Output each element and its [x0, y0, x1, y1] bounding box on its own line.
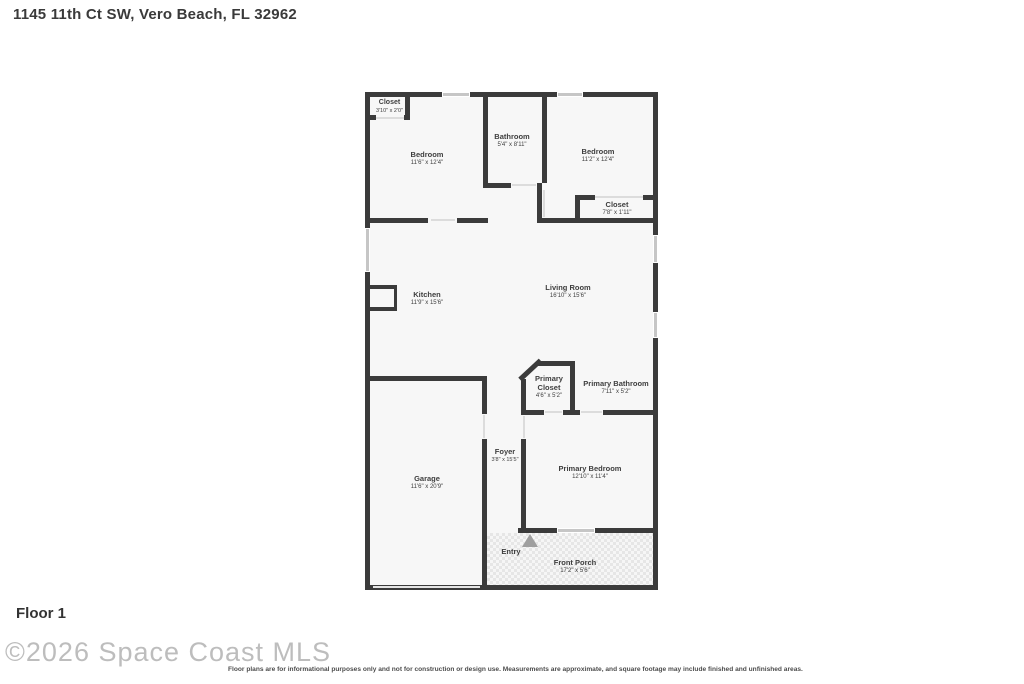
wall-segment [457, 218, 488, 223]
wall-segment [365, 92, 370, 590]
garage-door-opening [373, 586, 480, 588]
wall-segment [537, 183, 542, 223]
floor-plan-page: 1145 11th Ct SW, Vero Beach, FL 32962 [0, 0, 1024, 684]
room-label-primary-bathroom: Primary Bathroom 7'11" x 5'2" [576, 379, 656, 396]
room-label-foyer: Foyer 3'8" x 15'5" [484, 447, 526, 464]
room-label-living-room: Living Room 16'10" x 15'6" [528, 283, 608, 300]
wall-segment [370, 285, 397, 289]
room-label-primary-closet: Primary Closet 4'6" x 5'2" [526, 374, 572, 400]
room-label-entry: Entry [491, 547, 531, 556]
room-label-front-porch: Front Porch 17'2" x 5'6" [535, 558, 615, 575]
entry-arrow-icon [522, 534, 538, 547]
window [653, 312, 658, 338]
door-opening [581, 411, 602, 413]
wall-segment [542, 218, 658, 223]
door-opening [512, 184, 536, 186]
door-opening [543, 190, 545, 217]
window [557, 92, 583, 97]
wall-segment [482, 381, 487, 414]
door-opening [523, 416, 525, 438]
page-title: 1145 11th Ct SW, Vero Beach, FL 32962 [13, 6, 297, 23]
room-label-closet-top-left: Closet 3'10" x 2'0" [367, 98, 412, 115]
wall-segment [653, 92, 658, 590]
room-label-closet-right: Closet 7'8" x 1'11" [577, 200, 657, 217]
mls-watermark: ©2026 Space Coast MLS [5, 637, 331, 668]
window [365, 228, 370, 272]
window [442, 92, 470, 97]
room-label-kitchen: Kitchen 11'9" x 15'6" [387, 290, 467, 307]
wall-segment [365, 218, 428, 223]
wall-segment [365, 376, 487, 381]
door-opening [545, 411, 562, 413]
window [653, 235, 658, 263]
wall-segment [521, 410, 544, 415]
wall-segment [563, 410, 580, 415]
disclaimer-text: Floor plans are for informational purpos… [228, 666, 803, 673]
door-opening [483, 415, 485, 438]
floor-number-label: Floor 1 [16, 605, 66, 622]
room-label-bathroom: Bathroom 5'4" x 8'11" [472, 132, 552, 149]
floor-plan: Closet 3'10" x 2'0" Bedroom 11'6" x 12'4… [365, 92, 658, 590]
room-label-primary-bedroom: Primary Bedroom 12'10" x 11'4" [550, 464, 630, 481]
room-label-garage: Garage 11'6" x 20'9" [387, 474, 467, 491]
wall-segment [404, 115, 410, 120]
room-label-bedroom-right: Bedroom 11'2" x 12'4" [558, 147, 638, 164]
door-opening [431, 219, 455, 221]
door-opening [376, 117, 404, 119]
wall-segment [483, 183, 511, 188]
room-label-bedroom-left: Bedroom 11'6" x 12'4" [387, 150, 467, 167]
wall-segment [603, 410, 658, 415]
door-opening [595, 196, 643, 198]
wall-segment [370, 307, 397, 311]
